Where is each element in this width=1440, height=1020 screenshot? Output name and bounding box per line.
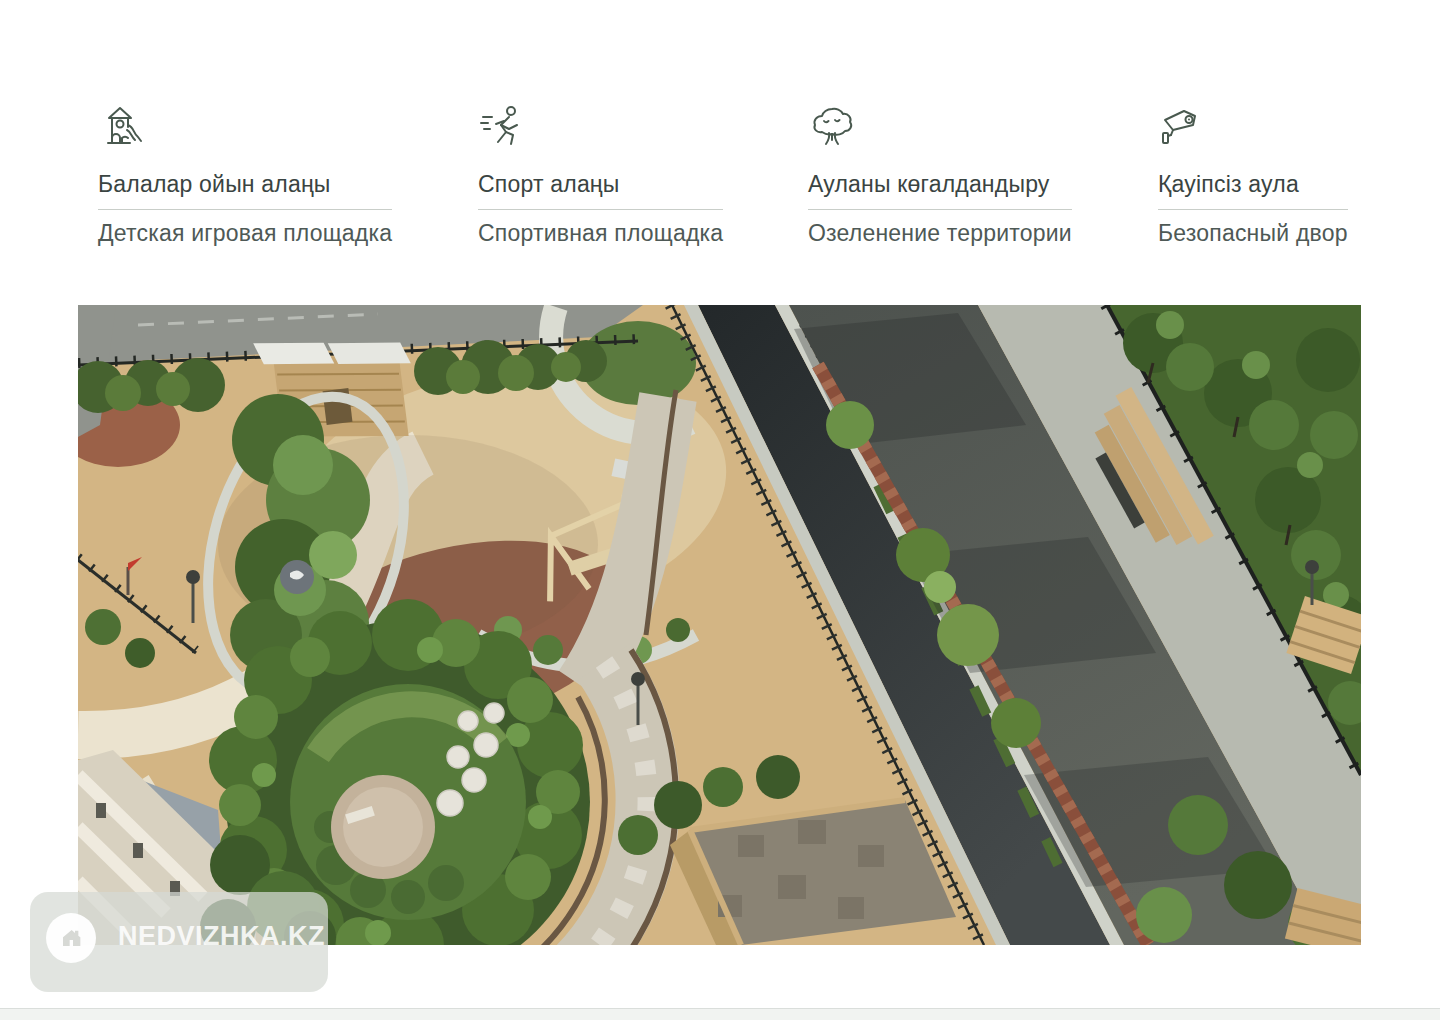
amenity-greening: Ауланы көгалдандыру Озеленение территори… <box>808 103 1072 247</box>
amenity-subtitle-ru: Озеленение территории <box>808 220 1072 246</box>
watermark-text: NEDVIZHKA.KZ <box>118 921 325 952</box>
playground-slide-icon <box>98 103 146 151</box>
page-root: Балалар ойын алаңы Детская игровая площа… <box>0 0 1440 1020</box>
amenity-subtitle-ru: Спортивная площадка <box>478 220 723 246</box>
cctv-camera-icon <box>1158 103 1206 151</box>
runner-icon <box>478 103 526 151</box>
amenity-playground: Балалар ойын алаңы Детская игровая площа… <box>98 103 392 247</box>
amenity-title-kk: Спорт алаңы <box>478 171 723 197</box>
amenity-title-kk: Ауланы көгалдандыру <box>808 171 1072 197</box>
amenities-row: Балалар ойын алаңы Детская игровая площа… <box>0 0 1440 305</box>
amenity-sport: Спорт алаңы Спортивная площадка <box>478 103 723 247</box>
divider <box>98 209 392 210</box>
courtyard-render-image <box>78 305 1361 945</box>
page-bottom-divider <box>0 1008 1440 1020</box>
divider <box>808 209 1072 210</box>
divider <box>1158 209 1348 210</box>
divider <box>478 209 723 210</box>
amenity-security: Қауіпсіз аула Безопасный двор <box>1158 103 1348 247</box>
tree-icon <box>808 103 856 151</box>
play-spinner <box>280 560 314 594</box>
house-icon <box>46 913 96 963</box>
amenity-title-kk: Балалар ойын алаңы <box>98 171 392 197</box>
watermark-badge: NEDVIZHKA.KZ <box>30 892 328 992</box>
courtyard-scene <box>78 305 1361 945</box>
amenity-title-kk: Қауіпсіз аула <box>1158 171 1348 197</box>
amenity-subtitle-ru: Безопасный двор <box>1158 220 1348 246</box>
amenity-subtitle-ru: Детская игровая площадка <box>98 220 392 246</box>
